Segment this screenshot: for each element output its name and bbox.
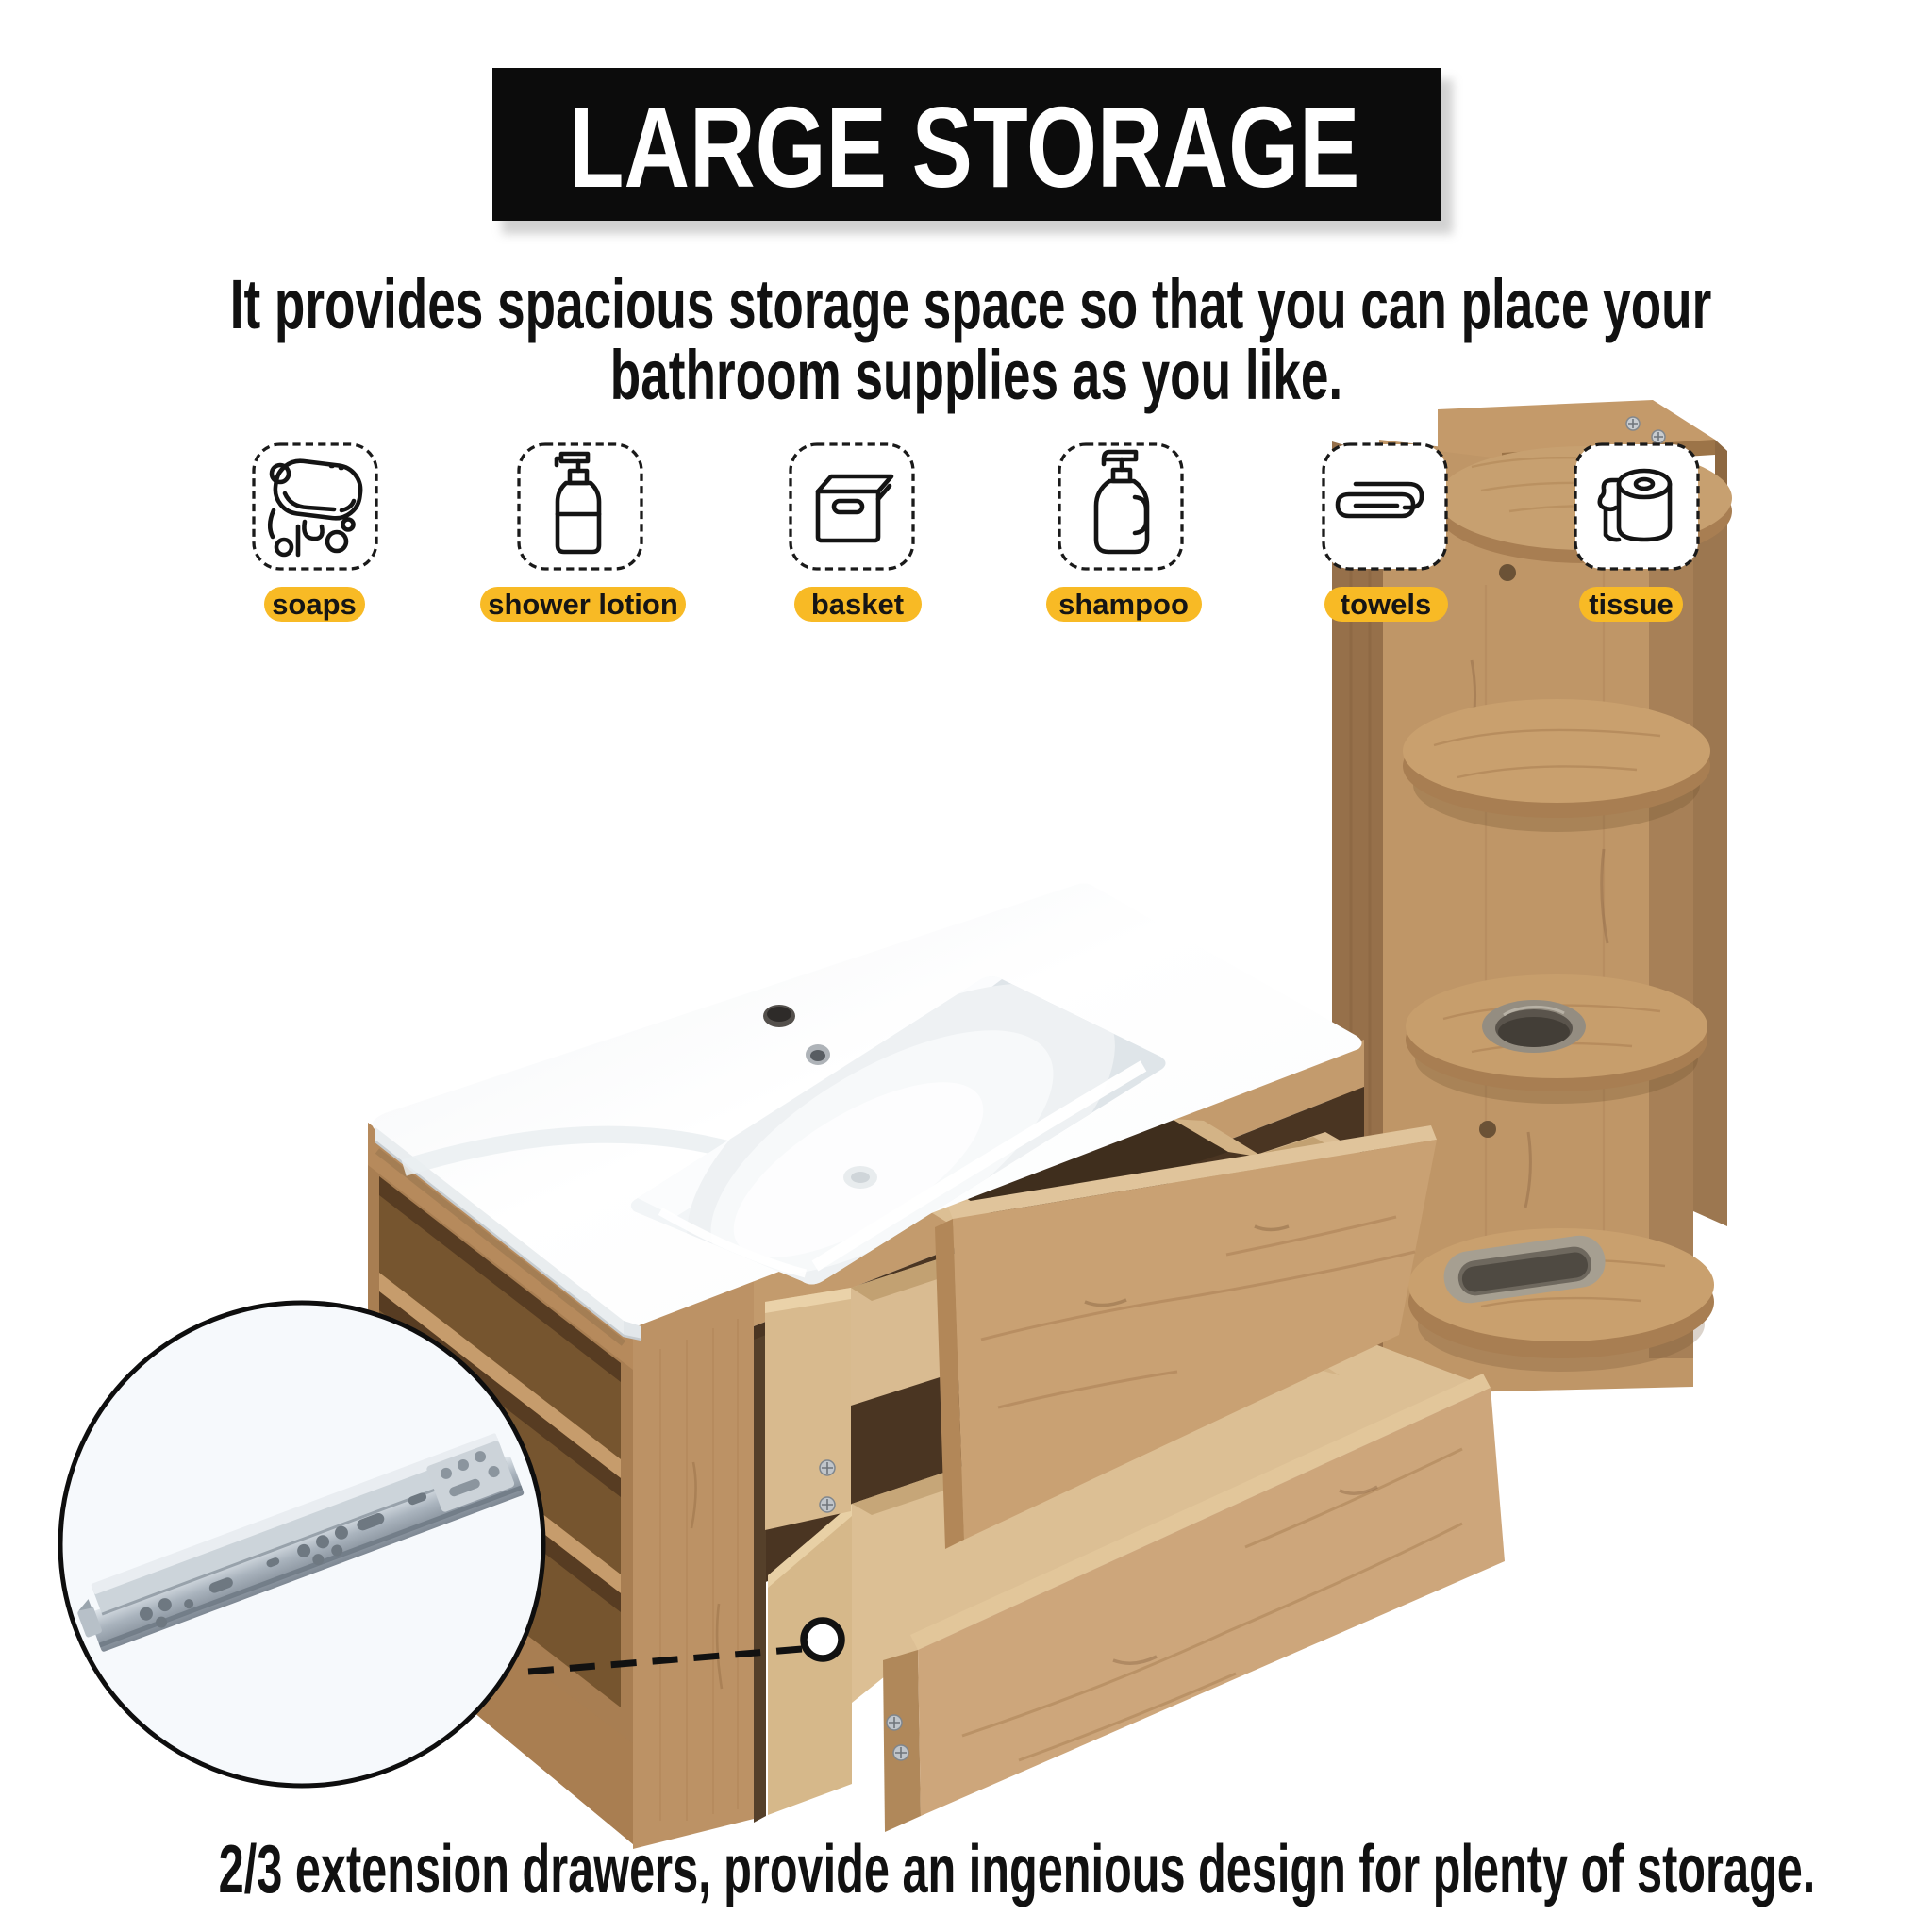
svg-text:It provides spacious storage s: It provides spacious storage space so th… (230, 265, 1712, 343)
svg-text:bathroom supplies as you like.: bathroom supplies as you like. (610, 336, 1342, 414)
svg-text:towels: towels (1341, 588, 1431, 621)
svg-text:tissue: tissue (1589, 588, 1674, 621)
svg-text:soaps: soaps (272, 588, 357, 621)
svg-text:LARGE STORAGE: LARGE STORAGE (569, 83, 1360, 211)
svg-text:shower lotion: shower lotion (488, 588, 678, 621)
svg-text:2/3 extension drawers, provide: 2/3 extension drawers, provide an ingeni… (219, 1832, 1816, 1908)
svg-text:shampoo: shampoo (1058, 588, 1189, 621)
svg-text:basket: basket (811, 588, 904, 621)
